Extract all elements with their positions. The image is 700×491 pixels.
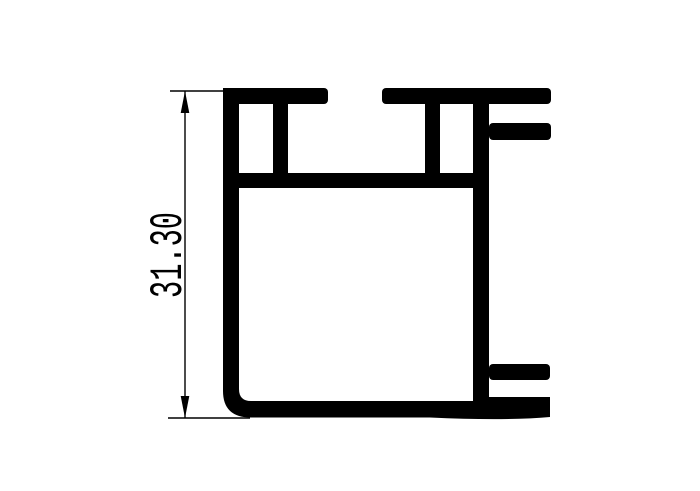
profile-right-wall (473, 88, 489, 405)
profile-right-stub-upper (489, 364, 550, 380)
profile-top-flange-right (382, 88, 551, 104)
profile-right-arm-upper (489, 123, 551, 140)
profile-inner-web-right (425, 104, 440, 174)
profile-mid-bar (223, 173, 489, 188)
dimension-label: 31.30 (143, 212, 195, 298)
profile-inner-web-left (273, 104, 288, 174)
profile-top-flange-left (223, 88, 328, 104)
profile-left-wall (223, 88, 239, 388)
technical-drawing-stage: 31.30 (0, 0, 700, 491)
technical-drawing-canvas: 31.30 (0, 0, 700, 491)
